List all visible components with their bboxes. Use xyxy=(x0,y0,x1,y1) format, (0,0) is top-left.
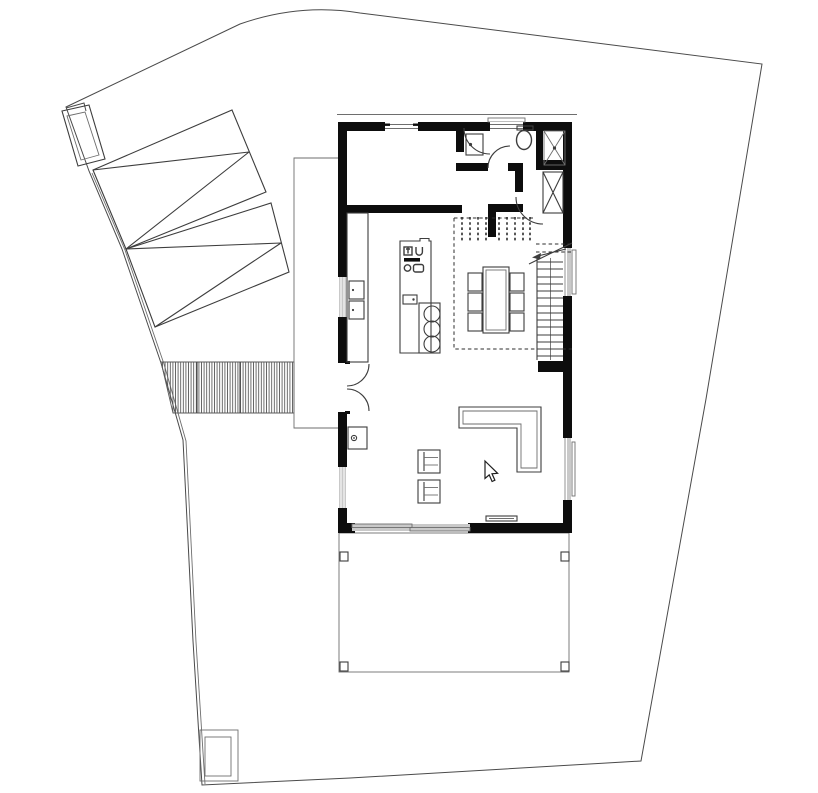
shower-drain-icon xyxy=(553,146,556,149)
dining-table xyxy=(483,267,509,333)
window-left-1 xyxy=(339,277,346,317)
dining-area xyxy=(468,267,524,333)
window-top-1 xyxy=(385,122,418,131)
window-right-stair xyxy=(564,248,576,296)
kitchen xyxy=(347,213,440,362)
storage-door-swing xyxy=(464,128,490,154)
doors xyxy=(345,128,543,531)
garden-shed xyxy=(200,730,238,781)
bar-stools xyxy=(424,306,440,352)
wc-door-swing xyxy=(488,146,510,168)
side-platform xyxy=(294,158,338,428)
lounge-chair-1 xyxy=(418,450,440,473)
gravel-walkway xyxy=(161,362,294,413)
dining-chairs xyxy=(468,273,524,331)
appliance-1 xyxy=(349,281,364,299)
wardrobe xyxy=(543,172,563,213)
appliance-2 xyxy=(349,301,364,319)
fireplace-stove xyxy=(348,427,367,449)
terrace xyxy=(339,533,569,672)
shower xyxy=(544,131,565,165)
lounge-chair-2 xyxy=(418,480,440,503)
kitchen-sink xyxy=(404,247,424,272)
bar-counter xyxy=(419,303,440,353)
floor-plan-canvas xyxy=(0,0,818,793)
sink-drain-icon xyxy=(469,143,472,146)
kitchen-island xyxy=(400,239,431,354)
french-door xyxy=(345,361,369,414)
l-sofa xyxy=(459,407,541,472)
window-right-living xyxy=(564,438,575,500)
door-threshold xyxy=(486,516,517,521)
terrace-posts xyxy=(340,552,569,671)
mouse-pointer-icon xyxy=(485,461,498,482)
sliding-door xyxy=(352,524,470,531)
floor-plan-drawing xyxy=(0,0,818,793)
window-top-2 xyxy=(488,118,525,131)
window-left-2 xyxy=(339,467,346,508)
hall-door-swing xyxy=(516,197,543,224)
living-area xyxy=(348,407,541,503)
stairs xyxy=(454,217,572,360)
garage-roof xyxy=(93,110,289,327)
island-control xyxy=(403,295,417,304)
toilet xyxy=(517,126,534,150)
kitchen-counter xyxy=(347,213,368,362)
